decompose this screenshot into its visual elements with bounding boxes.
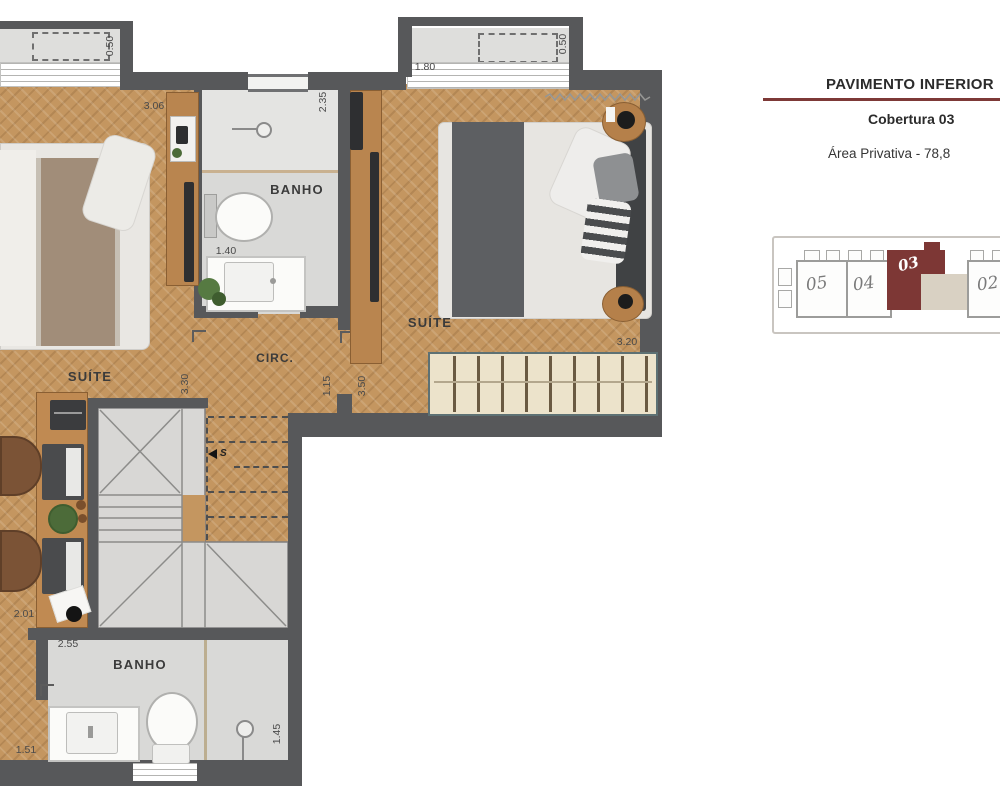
wall-balcony-top [0, 21, 128, 29]
dim-office-width: 2.01 [8, 608, 40, 620]
floor-plan-page: S [0, 0, 1000, 800]
dim-suite2-length: 3.50 [356, 370, 368, 402]
high-window [248, 74, 308, 92]
banho2-window [133, 763, 197, 781]
room-label-banho2: BANHO [95, 657, 185, 672]
dim-banho2-width: 2.55 [52, 638, 84, 650]
balcony-window [0, 62, 122, 87]
office-cup-2 [78, 514, 87, 523]
room-label-suite1: SUÍTE [40, 369, 140, 384]
wall-suite2-bottom [288, 413, 662, 437]
key-plan-tab [778, 290, 792, 308]
suite1-bed-duvet [0, 150, 36, 346]
suite2-tv [370, 152, 379, 302]
dim-circ-length: 3.30 [179, 367, 191, 401]
dim-hall-width: 1.51 [10, 744, 42, 756]
dim-banho1-length: 2.35 [317, 85, 329, 119]
stair-projection-dash [234, 466, 288, 468]
banho2-shower-stem [242, 736, 244, 760]
office-laptop-1-screen [66, 448, 81, 496]
wall-lower-right [288, 437, 302, 763]
dim-bay-width: 1.80 [408, 61, 442, 73]
key-plan: 05 04 03 02 [772, 236, 1000, 334]
stair-projection-dash [208, 491, 288, 493]
room-label-banho1: BANHO [252, 182, 342, 197]
dim-suite2-width: 3.20 [610, 336, 644, 348]
suite2-closet-shelf-line [434, 381, 652, 383]
office-plant [48, 504, 78, 534]
room-label-suite2: SUÍTE [380, 315, 480, 330]
room-label-circ: CIRC. [230, 351, 320, 365]
banho1-shower-arm [232, 128, 258, 130]
banho2-toilet-bowl [146, 692, 198, 752]
wall-top-left [120, 72, 248, 90]
suite2-side-table-object [618, 294, 633, 309]
balcony-ac-dashed-outline [32, 32, 110, 61]
banho1-shower-head [256, 122, 272, 138]
dim-banho1-width: 1.40 [210, 245, 242, 257]
key-plan-unit-02-label: 02 [976, 273, 1000, 296]
suite2-bed-throw [452, 122, 524, 317]
door-hinge-banho2 [40, 684, 54, 696]
suite2-closet [428, 352, 658, 416]
page-title: PAVIMENTO INFERIOR [826, 76, 994, 93]
office-laptop-2-screen [66, 542, 81, 590]
stair-direction-label: S [220, 448, 227, 459]
dim-bay-depth: 0.50 [557, 29, 569, 59]
suite1-tv [176, 126, 188, 144]
suite2-panel-dark-top [350, 92, 363, 150]
dim-banho2-length: 1.45 [271, 719, 283, 749]
stair-projection-dash [208, 416, 288, 418]
office-printer-slot [54, 412, 82, 414]
wall-balcony-right [120, 21, 133, 78]
dim-suite1-width: 3.06 [136, 100, 172, 112]
suite2-lamp [617, 111, 635, 129]
door-hinge-suite1 [192, 330, 206, 342]
office-cup-1 [76, 500, 86, 510]
suite2-closet-rails [432, 356, 654, 412]
banho2-shower-head [236, 720, 254, 738]
suite1-shelf-plant [172, 148, 182, 158]
key-plan-unit-04-label: 04 [852, 273, 876, 296]
wall-suite2-door-stub [337, 394, 352, 413]
private-area-text: Área Privativa - 78,8 [828, 146, 950, 161]
banho2-shower-divider [204, 636, 207, 763]
wall-bay-right [569, 17, 583, 77]
suite2-curtain-squiggle [545, 92, 653, 102]
key-plan-unit-05-label: 05 [805, 273, 829, 296]
stair-projection-dash-vertical [206, 418, 208, 540]
wall-bay-top [398, 17, 582, 26]
banho2-toilet-base [152, 744, 190, 764]
stair-projection-dash [208, 516, 288, 518]
dim-balcony-depth: 0.50 [104, 31, 116, 61]
stair-direction-arrow [208, 449, 217, 459]
banho1-sink [224, 262, 274, 302]
dim-circ-width: 1.15 [321, 371, 333, 401]
bay-ac-dashed-outline [478, 33, 558, 63]
banho1-plant-small [212, 292, 226, 306]
banho2-faucet [88, 726, 93, 738]
key-plan-unit-03-terrace [921, 274, 967, 310]
office-printer [50, 400, 86, 430]
key-plan-tab [778, 268, 792, 286]
office-object [66, 606, 82, 622]
banho1-threshold [202, 170, 338, 173]
suite2-notepad [606, 107, 615, 122]
page-subtitle: Cobertura 03 [868, 111, 954, 127]
wall-banho1-bottom-b [300, 306, 350, 318]
banho1-toilet-bowl [215, 192, 273, 242]
banho1-faucet [270, 278, 276, 284]
wall-banho1-right [338, 84, 350, 330]
suite1-wardrobe-panel [184, 182, 194, 282]
suite2-pillow-striped [580, 197, 632, 265]
stair-projection-dash [208, 441, 288, 443]
title-underline [763, 98, 1000, 101]
